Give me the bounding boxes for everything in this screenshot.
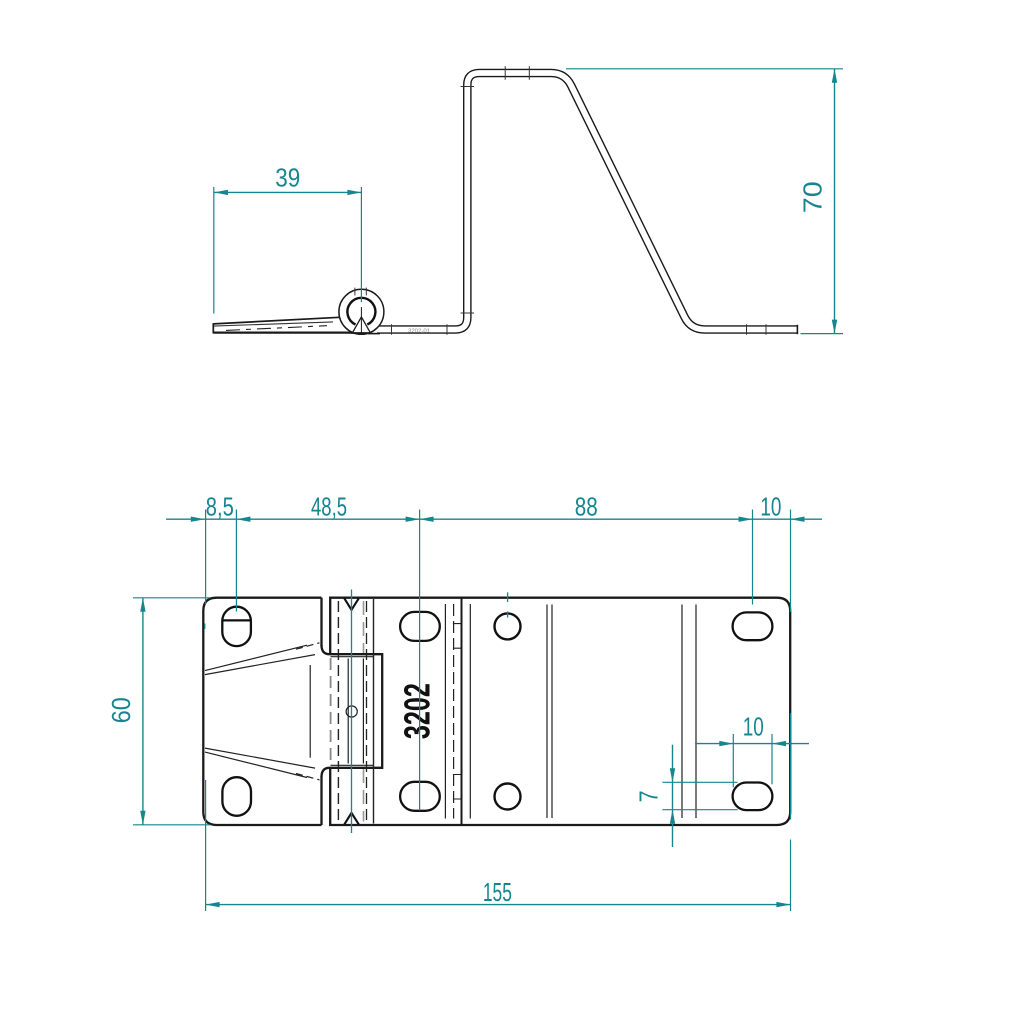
svg-text:39: 39: [275, 163, 300, 193]
svg-text:3202: 3202: [397, 683, 438, 739]
svg-text:3202-01: 3202-01: [408, 329, 430, 335]
svg-text:8,5: 8,5: [206, 491, 234, 521]
svg-text:10: 10: [760, 491, 781, 521]
svg-text:10: 10: [743, 711, 764, 741]
svg-text:70: 70: [798, 181, 828, 213]
svg-text:60: 60: [106, 697, 136, 723]
svg-text:48,5: 48,5: [311, 491, 347, 521]
svg-text:7: 7: [634, 790, 664, 802]
svg-text:88: 88: [575, 491, 598, 521]
svg-text:155: 155: [483, 877, 512, 907]
